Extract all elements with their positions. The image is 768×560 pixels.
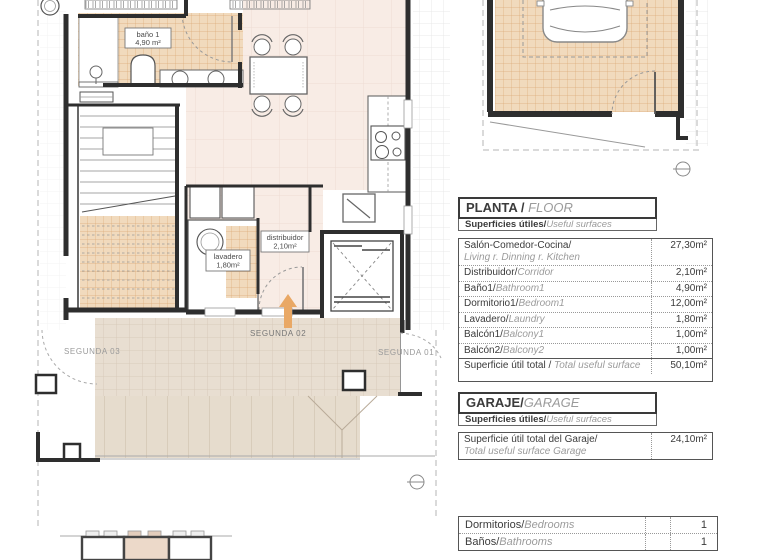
unit-marker-segunda01: SEGUNDA 01 — [378, 348, 434, 357]
surface-row: Balcón2/Balcony2 1,00m² — [459, 343, 712, 359]
count-label-es: Dormitorios/ — [465, 519, 524, 531]
garage-title-en: GARAGE — [524, 395, 580, 410]
row-value: 1,80m² — [651, 313, 712, 328]
column — [64, 444, 80, 460]
key-unit — [169, 537, 211, 560]
laundry-room: lavadero 1,80m² — [188, 220, 258, 310]
row-value: 1,00m² — [651, 344, 712, 359]
shaft-box — [343, 194, 375, 222]
garage-surfaces-section: GARAJE/GARAGE Superficies útiles/Useful … — [458, 392, 713, 460]
surface-row: Distribuidor/Corridor 2,10m² — [459, 265, 712, 281]
surface-row: Salón-Comedor-Cocina/ Living r. Dinning … — [459, 239, 712, 265]
key-unit-highlighted — [124, 537, 169, 560]
count-label-en: Bathrooms — [499, 536, 552, 548]
row-value: 1,00m² — [651, 328, 712, 343]
window-band — [85, 0, 177, 9]
terrace — [95, 318, 435, 459]
room-counts-table: Dormitorios/Bedrooms 1 Baños/Bathrooms 1 — [458, 516, 718, 551]
bathroom-area-label: 4,90 m² — [135, 38, 161, 47]
row-label-es: Superficie útil total del Garaje/ — [464, 434, 646, 446]
row-label-en: Corridor — [517, 267, 553, 278]
north-indicator-icon — [673, 162, 690, 176]
row-label-en: Living r. Dinning r. Kitchen — [464, 252, 646, 264]
surface-row: Balcón1/Balcony1 1,00m² — [459, 327, 712, 343]
row-label-en: Laundry — [508, 314, 544, 325]
row-label-es: Balcón2/ — [464, 345, 503, 356]
ramp-line — [490, 122, 645, 147]
closet — [222, 186, 254, 218]
row-label-en: Bedroom1 — [518, 298, 564, 309]
row-label-es: Lavadero/ — [464, 314, 508, 325]
row-label-en: Balcony1 — [503, 329, 544, 340]
bathroom: baño 1 4,90 m² — [78, 13, 243, 87]
floor-plan-sheet: baño 1 4,90 m² — [0, 0, 768, 560]
car-icon — [537, 0, 633, 42]
garage-plan — [483, 0, 708, 176]
row-label-en: Bathroom1 — [496, 283, 545, 294]
window-opening — [404, 100, 412, 128]
row-label-es: Dormitorio1/ — [464, 298, 518, 309]
row-value: 12,00m² — [651, 297, 712, 312]
row-label-es: Baño1/ — [464, 283, 496, 294]
window-opening — [404, 206, 412, 234]
surface-row: Dormitorio1/Bedroom1 12,00m² — [459, 296, 712, 312]
row-value: 4,90m² — [651, 282, 712, 297]
surface-total-row: Superficie útil total / Total useful sur… — [459, 358, 712, 374]
staircase — [78, 105, 177, 310]
kitchen-counter — [368, 96, 408, 192]
north-indicator-icon — [407, 475, 424, 489]
neighbor-grid — [413, 0, 450, 330]
column — [343, 371, 365, 390]
window-opening — [205, 308, 235, 316]
count-gap-cell — [645, 534, 670, 550]
left-margin-grid — [40, 0, 66, 330]
row-value: 2,10m² — [651, 266, 712, 281]
floor-surfaces-table: Salón-Comedor-Cocina/ Living r. Dinning … — [458, 238, 713, 382]
floor-title-es: PLANTA / — [466, 200, 528, 215]
count-row: Dormitorios/Bedrooms 1 — [459, 517, 717, 533]
dining-table-icon — [250, 57, 307, 94]
unit-marker-segunda03: SEGUNDA 03 — [64, 347, 120, 356]
elevator — [322, 232, 402, 320]
floor-title-en: FLOOR — [528, 200, 573, 215]
round-column-icon — [41, 0, 59, 15]
table-spacer — [459, 374, 712, 381]
count-value: 1 — [670, 534, 717, 550]
unit-marker-segunda02: SEGUNDA 02 — [250, 329, 306, 338]
row-label-es: Distribuidor/ — [464, 267, 517, 278]
toilet-icon — [131, 55, 155, 84]
row-label-en: Total useful surface Garage — [464, 446, 646, 458]
pedestal-sink-icon — [90, 66, 102, 78]
surface-row: Baño1/Bathroom1 4,90m² — [459, 281, 712, 297]
corridor-area-label: 2,10m² — [273, 242, 297, 251]
closet — [190, 186, 220, 218]
count-label-es: Baños/ — [465, 536, 499, 548]
garage-section-title: GARAJE/GARAGE — [458, 392, 657, 414]
count-gap-cell — [645, 517, 670, 533]
window-band — [230, 0, 310, 9]
row-value: 27,30m² — [651, 239, 712, 265]
floor-section-subtitle: Superficies útiles/Useful surfaces — [458, 219, 657, 231]
location-key — [60, 531, 232, 560]
floor-subtitle-en: Useful surfaces — [546, 219, 611, 230]
count-row: Baños/Bathrooms 1 — [459, 533, 717, 550]
row-label-es: Salón-Comedor-Cocina/ — [464, 240, 646, 252]
floor-section-title: PLANTA / FLOOR — [458, 197, 657, 219]
garage-surfaces-table: Superficie útil total del Garaje/ Total … — [458, 432, 713, 460]
column — [36, 375, 56, 393]
apartment-plan: baño 1 4,90 m² — [36, 0, 450, 530]
laundry-area-label: 1,80m² — [216, 261, 240, 270]
room-counts-section: Dormitorios/Bedrooms 1 Baños/Bathrooms 1 — [458, 516, 718, 551]
floor-surfaces-section: PLANTA / FLOOR Superficies útiles/Useful… — [458, 197, 713, 382]
total-label-en: Total useful surface — [554, 360, 640, 371]
row-label-en: Balcony2 — [503, 345, 544, 356]
row-label-es: Balcón1/ — [464, 329, 503, 340]
garage-title-es: GARAJE/ — [466, 395, 524, 410]
row-value: 24,10m² — [651, 433, 712, 459]
floor-subtitle-es: Superficies útiles/ — [465, 219, 546, 230]
total-label-es: Superficie útil total / — [464, 360, 554, 371]
count-label-en: Bedrooms — [524, 519, 574, 531]
garage-subtitle-en: Useful surfaces — [546, 414, 611, 425]
garage-subtitle-es: Superficies útiles/ — [465, 414, 546, 425]
surface-row: Lavadero/Laundry 1,80m² — [459, 312, 712, 328]
total-value: 50,10m² — [651, 359, 712, 374]
garage-section-subtitle: Superficies útiles/Useful surfaces — [458, 414, 657, 426]
surface-row: Superficie útil total del Garaje/ Total … — [459, 433, 712, 459]
count-value: 1 — [670, 517, 717, 533]
key-unit — [82, 537, 124, 560]
